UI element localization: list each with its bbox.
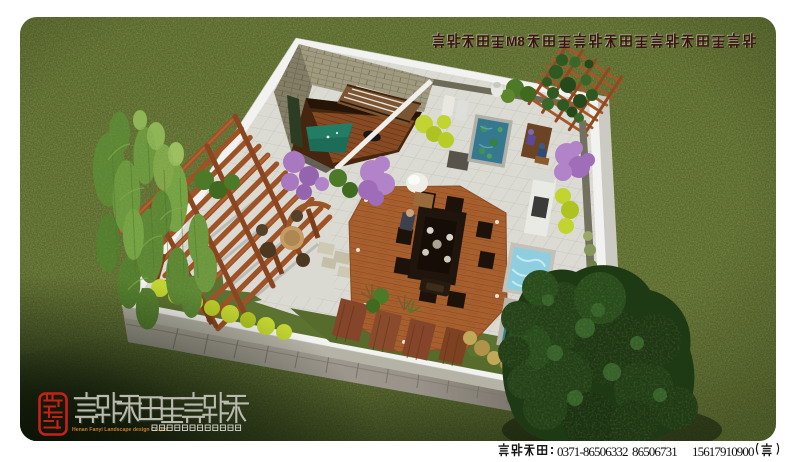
svg-text:M8: M8	[506, 34, 525, 49]
svg-text:86506731: 86506731	[632, 444, 677, 459]
svg-text:0371-86506332: 0371-86506332	[557, 444, 628, 459]
svg-text:15617910900: 15617910900	[692, 444, 754, 459]
